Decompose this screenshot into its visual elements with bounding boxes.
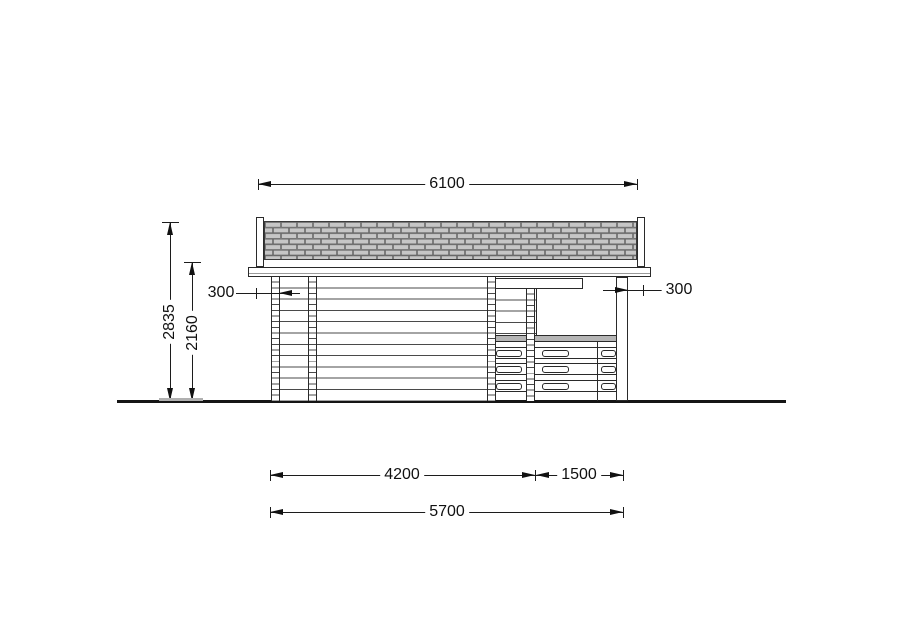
railing-log-row bbox=[491, 363, 618, 375]
corner-logs-mid bbox=[487, 277, 496, 401]
railing-plank bbox=[601, 383, 616, 390]
railing-divider bbox=[597, 342, 598, 401]
eave-board-edge bbox=[249, 273, 650, 274]
dim-arrow bbox=[536, 472, 549, 478]
elevation-drawing: 6100 2835 2160 300 300 4200 1500 5700 bbox=[0, 0, 900, 636]
dim-arrow bbox=[270, 509, 283, 515]
dim-cabin-length-label: 4200 bbox=[380, 466, 424, 484]
dim-arrow bbox=[610, 509, 623, 515]
dim-overhang-right-label: 300 bbox=[662, 281, 697, 299]
dim-tick bbox=[643, 285, 644, 296]
dim-total-height-label: 2835 bbox=[161, 300, 179, 344]
railing-plank bbox=[542, 383, 569, 390]
dim-roof-width-label: 6100 bbox=[425, 175, 469, 193]
dim-ground-bar bbox=[181, 398, 203, 401]
dim-arrow bbox=[624, 181, 637, 187]
dim-arrow bbox=[258, 181, 271, 187]
dim-arrow bbox=[610, 472, 623, 478]
railing-handrail bbox=[491, 335, 628, 342]
dim-arrow bbox=[522, 472, 535, 478]
railing-plank bbox=[542, 350, 569, 357]
railing-plank bbox=[542, 366, 569, 373]
railing-plank bbox=[601, 350, 616, 357]
railing-plank bbox=[496, 350, 522, 357]
dim-tick bbox=[623, 470, 624, 481]
corner-logs-left-inner bbox=[308, 277, 317, 401]
log-wall bbox=[271, 277, 491, 401]
eave-board bbox=[248, 267, 651, 277]
railing-plank bbox=[601, 366, 616, 373]
dim-ground-bar bbox=[159, 398, 181, 401]
dim-arrow bbox=[279, 290, 292, 296]
roof-shingles bbox=[264, 221, 637, 260]
dim-tick bbox=[637, 179, 638, 190]
dim-terrace-length-label: 1500 bbox=[557, 466, 601, 484]
roof-end-board-right bbox=[637, 217, 645, 267]
dim-arrow bbox=[270, 472, 283, 478]
dim-overhang-left-label: 300 bbox=[204, 284, 239, 302]
dim-wall-height-label: 2160 bbox=[184, 311, 202, 355]
dim-total-length-label: 5700 bbox=[425, 503, 469, 521]
railing-plank bbox=[496, 383, 522, 390]
dim-arrow bbox=[167, 222, 173, 235]
dim-overhang-right-line bbox=[603, 290, 663, 291]
dim-arrow bbox=[615, 287, 628, 293]
header-beam bbox=[491, 278, 583, 289]
railing-log-row bbox=[491, 347, 618, 359]
railing-log-row bbox=[491, 380, 618, 392]
dim-arrow bbox=[189, 262, 195, 275]
roof-end-board-left bbox=[256, 217, 264, 267]
roof bbox=[256, 217, 645, 267]
dim-tick bbox=[256, 288, 257, 299]
corner-logs-right bbox=[526, 289, 535, 401]
dim-tick bbox=[623, 507, 624, 518]
railing-plank bbox=[496, 366, 522, 373]
shingle-pattern bbox=[265, 222, 636, 259]
terrace-post bbox=[616, 277, 628, 401]
